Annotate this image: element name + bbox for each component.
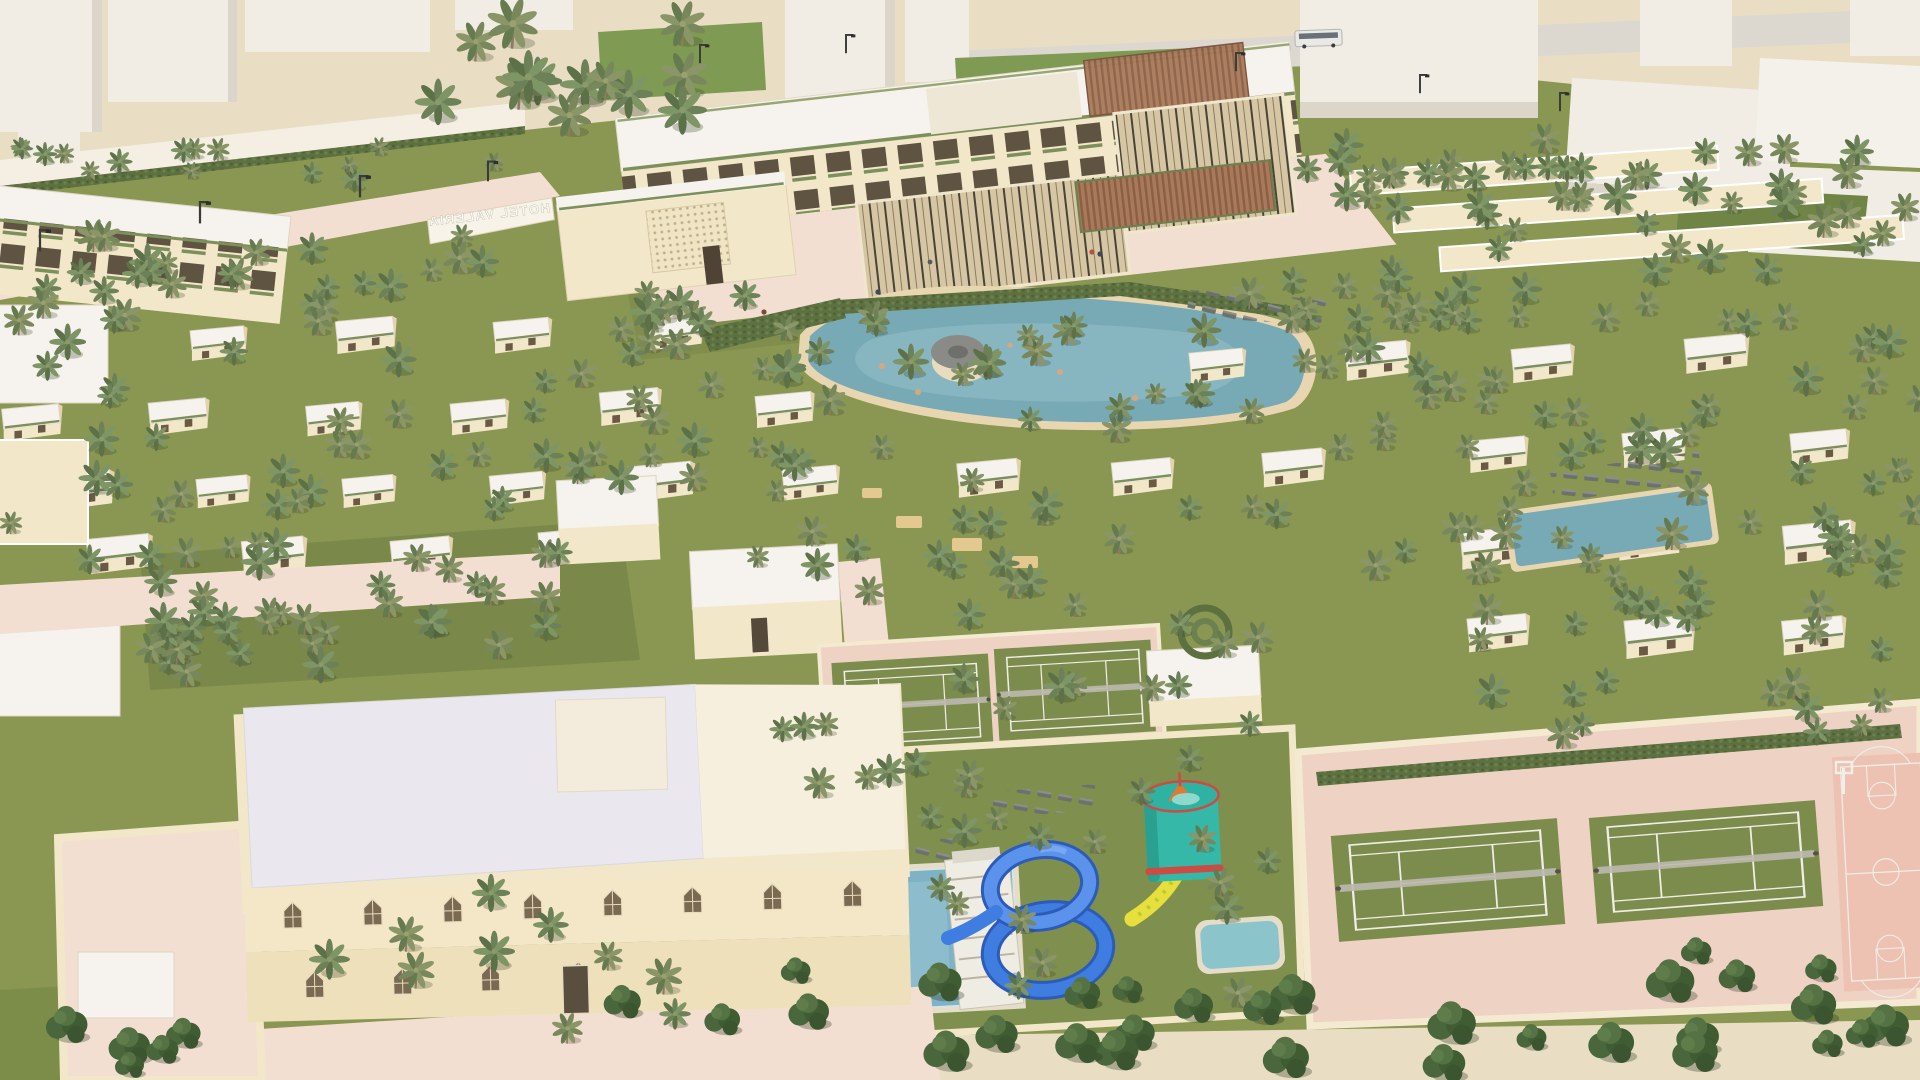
palm-tree: [1599, 177, 1637, 215]
palm-tree: [805, 337, 834, 366]
palm-tree: [171, 137, 197, 163]
palm-tree: [947, 813, 982, 848]
palm-tree: [1827, 526, 1854, 553]
palm-tree: [145, 602, 183, 640]
kids-pool: [1194, 915, 1286, 975]
palm-tree: [1237, 711, 1264, 738]
palm-tree: [122, 258, 153, 289]
palm-tree: [953, 598, 986, 631]
palm-tree: [302, 646, 339, 683]
palm-tree: [1691, 138, 1719, 166]
palm-tree: [530, 610, 562, 642]
palm-tree: [659, 998, 691, 1030]
palm-tree: [1210, 891, 1243, 924]
palm-tree: [84, 421, 120, 457]
palm-tree: [49, 323, 86, 360]
palm-tree: [1569, 712, 1595, 738]
palm-tree: [1530, 401, 1559, 430]
palm-tree: [923, 540, 955, 572]
palm-tree: [1683, 587, 1715, 619]
palm-tree: [100, 305, 128, 333]
palm-tree: [801, 548, 835, 582]
palm-tree: [1485, 235, 1512, 262]
palm-tree: [948, 505, 978, 535]
palm-tree: [520, 397, 546, 423]
bus: [1295, 29, 1343, 49]
palm-tree: [74, 544, 104, 574]
palm-tree: [1809, 502, 1839, 532]
palm-tree: [1692, 239, 1728, 275]
palm-tree: [1343, 304, 1373, 334]
palm-tree: [301, 162, 324, 185]
palm-tree: [1460, 162, 1490, 192]
palm-tree: [532, 369, 557, 394]
palm-tree: [1850, 231, 1876, 257]
palm-tree: [1382, 193, 1414, 225]
palm-tree: [144, 565, 177, 598]
palm-tree: [1554, 156, 1580, 182]
palm-tree: [67, 258, 95, 286]
palm-tree: [502, 50, 556, 104]
palm-tree: [1392, 538, 1418, 564]
palm-tree: [1176, 495, 1202, 521]
palm-tree: [948, 663, 980, 695]
palm-tree: [1787, 457, 1816, 486]
palm-tree: [33, 142, 57, 166]
palm-tree: [89, 276, 119, 306]
palm-tree: [1105, 393, 1135, 423]
palm-tree: [32, 351, 62, 381]
palm-tree: [266, 454, 301, 489]
palm-tree: [1633, 210, 1660, 237]
palm-tree: [1187, 313, 1222, 348]
resort-aerial-scene: HOTEL VALERIA: [0, 0, 1920, 1080]
palm-tree: [1043, 667, 1080, 704]
palm-tree: [341, 165, 369, 193]
palm-tree: [472, 874, 510, 912]
palm-tree: [1640, 596, 1673, 629]
palm-tree: [481, 496, 507, 522]
palm-tree: [102, 469, 133, 500]
palm-tree: [1562, 611, 1588, 637]
palm-tree: [1167, 610, 1195, 638]
palm-tree: [414, 604, 449, 639]
palm-tree: [1017, 407, 1043, 433]
palm-tree: [1580, 428, 1607, 455]
palm-tree: [309, 939, 350, 980]
palm-tree: [1803, 717, 1831, 745]
palm-tree: [214, 617, 242, 645]
palm-tree: [901, 748, 931, 778]
palm-tree: [1462, 189, 1498, 225]
palm-tree: [768, 350, 807, 389]
palm-tree: [466, 245, 499, 278]
palm-tree: [11, 138, 33, 160]
palm-tree: [1352, 331, 1386, 365]
palm-tree: [1511, 153, 1539, 181]
tennis-court-2: [1589, 800, 1823, 924]
palm-tree: [1788, 361, 1824, 397]
palm-tree: [463, 571, 490, 598]
palm-tree: [789, 712, 818, 741]
palm-tree: [1872, 324, 1908, 360]
palm-tree: [381, 341, 417, 377]
palm-tree: [1324, 144, 1357, 177]
palm-tree: [544, 538, 573, 567]
palm-tree: [1176, 745, 1204, 773]
palm-tree: [1626, 413, 1659, 446]
palm-tree: [1733, 308, 1762, 337]
palm-tree: [1027, 486, 1063, 522]
palm-tree: [769, 716, 795, 742]
palm-tree: [106, 149, 132, 175]
palm-tree: [533, 907, 569, 943]
palm-tree: [1026, 822, 1054, 850]
palm-tree: [676, 422, 712, 458]
palm-tree: [1060, 312, 1088, 340]
palm-tree: [1766, 184, 1803, 221]
palm-tree: [917, 803, 944, 830]
palm-tree: [1678, 172, 1712, 206]
palm-tree: [628, 292, 667, 331]
palm-tree: [1279, 266, 1307, 294]
palm-tree: [374, 268, 409, 303]
palm-tree: [1382, 262, 1414, 294]
palm-tree: [604, 460, 639, 495]
palm-tree: [842, 534, 871, 563]
palm-tree: [927, 873, 955, 901]
palm-tree: [217, 260, 245, 288]
palm-tree: [177, 613, 207, 643]
palm-tree: [862, 309, 890, 337]
palm-tree: [296, 232, 329, 265]
palm-tree: [1127, 777, 1155, 805]
palm-tree: [1293, 155, 1321, 183]
palm-tree: [473, 931, 515, 973]
palm-tree: [427, 449, 459, 481]
palm-tree: [893, 344, 929, 380]
palm-tree: [1559, 680, 1587, 708]
palm-tree: [686, 307, 716, 337]
palm-tree: [1860, 470, 1887, 497]
palm-tree: [415, 79, 462, 126]
palm-tree: [1870, 534, 1906, 570]
palm-tree: [1254, 847, 1282, 875]
palm-tree: [1592, 667, 1620, 695]
palm-tree: [529, 438, 564, 473]
palm-tree: [314, 274, 340, 300]
palm-tree: [778, 449, 811, 482]
palm-tree: [1261, 498, 1292, 529]
palm-tree: [1181, 379, 1210, 408]
palm-tree: [97, 383, 123, 409]
palm-tree: [220, 337, 249, 366]
palm-tree: [973, 347, 1006, 380]
palm-tree: [658, 85, 707, 134]
palm-tree: [1474, 673, 1510, 709]
palm-tree: [1004, 971, 1032, 999]
palm-tree: [1165, 671, 1193, 699]
palm-tree: [1751, 254, 1783, 286]
palm-tree: [1508, 272, 1543, 307]
palm-tree: [142, 423, 170, 451]
palm-tree: [729, 280, 760, 311]
tennis-court-1: [1331, 818, 1565, 942]
palm-tree: [974, 506, 1008, 540]
palm-tree: [241, 543, 279, 581]
palm-tree: [1638, 253, 1673, 288]
render-canvas: HOTEL VALERIA: [0, 0, 1920, 1080]
palm-tree: [1408, 360, 1444, 396]
palm-tree: [1013, 564, 1048, 599]
hall-door: [562, 965, 589, 1014]
palm-tree: [226, 639, 254, 667]
palm-tree: [1868, 636, 1894, 662]
palm-tree: [351, 270, 377, 296]
